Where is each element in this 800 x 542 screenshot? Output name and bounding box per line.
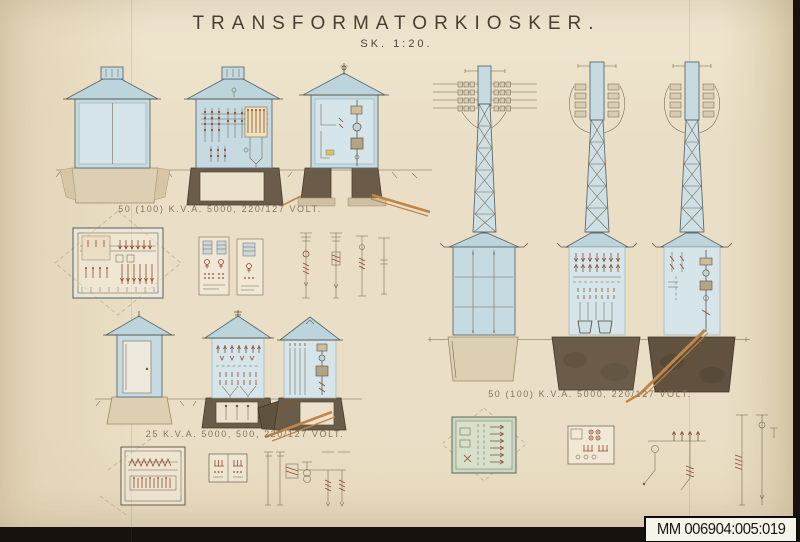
single-line-diagrams-bottom-right	[643, 415, 778, 505]
archive-label-plate: MM 006904:005:019	[644, 516, 798, 542]
single-line-diagrams-top	[300, 233, 390, 298]
caption-row1: 50 (100) K.V.A. 5000, 220/127 VOLT.	[70, 204, 370, 214]
plan-view-bottom-right	[442, 408, 526, 481]
drawing-scale-note: SK. 1:20.	[0, 38, 793, 50]
detail-panel-bottom-left	[209, 454, 247, 482]
tower-front-elevation	[433, 66, 537, 381]
detail-panels-top	[199, 237, 263, 295]
kiosk-front-elevation	[60, 67, 170, 203]
tower-section-elevation	[552, 62, 640, 390]
small-kiosk-front	[103, 311, 175, 424]
kiosk-side-section	[283, 63, 430, 216]
plan-view-top	[55, 211, 181, 315]
kiosk-section-elevation	[184, 67, 283, 205]
caption-row2: 25 K.V.A. 5000, 500, 220/127 VOLT.	[110, 429, 380, 439]
caption-towers: 50 (100) K.V.A. 5000, 220/127 VOLT.	[470, 389, 710, 399]
plan-view-bottom-left	[100, 438, 185, 516]
tower-side-section	[626, 62, 735, 402]
drawing-title: TRANSFORMATORKIOSKER.	[0, 13, 793, 35]
drawing-artwork	[0, 0, 800, 542]
archive-label-text: MM 006904:005:019	[657, 521, 786, 539]
detail-panel-bottom-right	[568, 426, 614, 464]
single-line-diagrams-bottom-left	[264, 452, 350, 506]
small-kiosk-side-section	[258, 317, 346, 441]
scanned-drawing-photo: TRANSFORMATORKIOSKER. SK. 1:20. 50 (100)…	[0, 0, 800, 542]
